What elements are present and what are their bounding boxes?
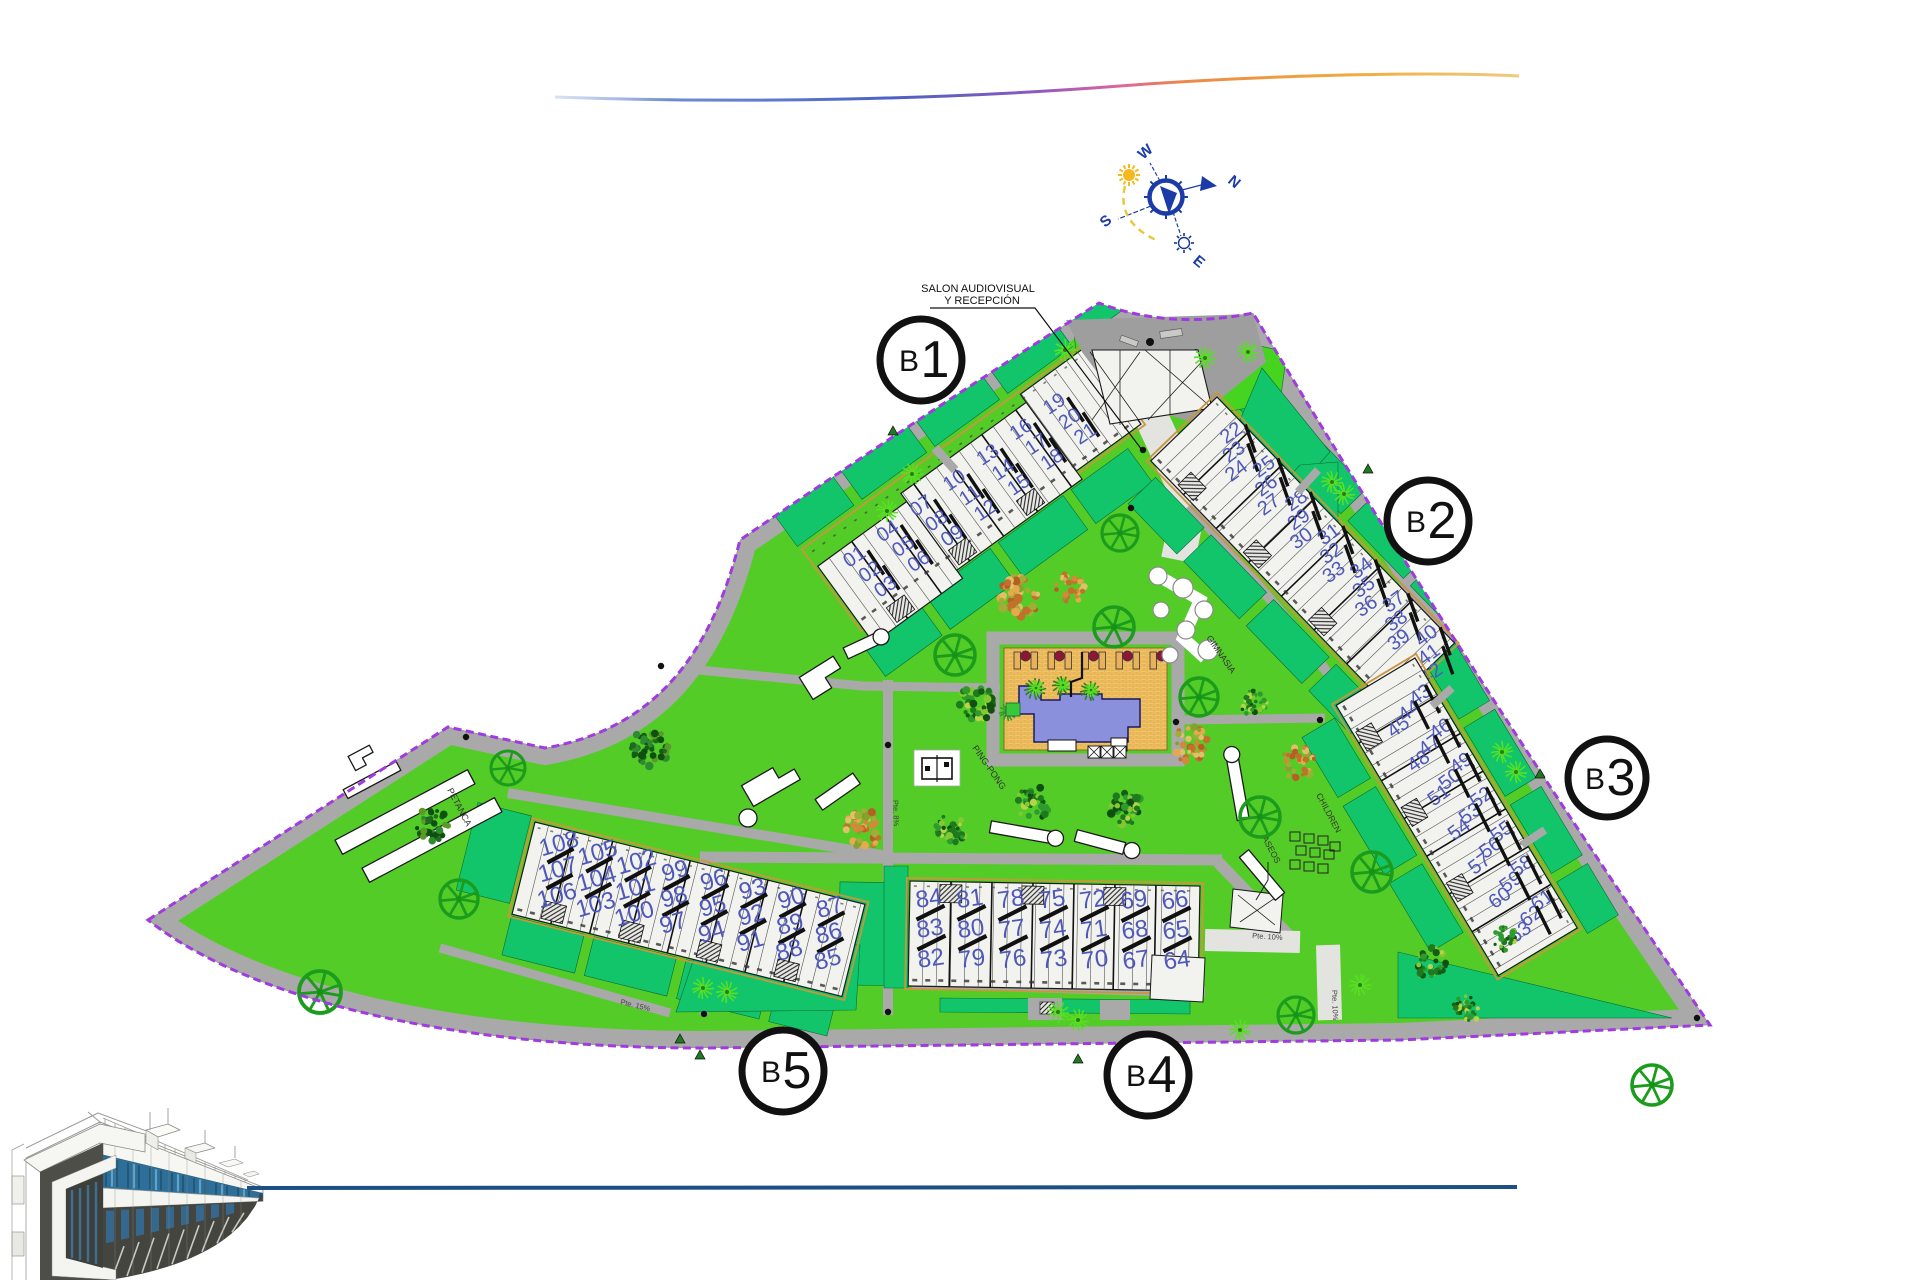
svg-text:B: B — [1406, 506, 1426, 539]
svg-text:73: 73 — [1039, 944, 1069, 974]
svg-text:B: B — [1585, 763, 1605, 796]
svg-text:Pte. 10%: Pte. 10% — [1330, 990, 1340, 1021]
svg-text:Pte. 8%: Pte. 8% — [891, 800, 901, 827]
svg-text:70: 70 — [1080, 945, 1110, 975]
svg-text:67: 67 — [1121, 945, 1151, 975]
svg-text:4: 4 — [1148, 1046, 1177, 1104]
svg-text:82: 82 — [916, 943, 946, 973]
svg-text:1: 1 — [921, 331, 950, 389]
svg-text:64: 64 — [1162, 945, 1192, 975]
svg-text:SALON AUDIOVISUAL: SALON AUDIOVISUAL — [921, 283, 1035, 295]
svg-text:B: B — [761, 1056, 781, 1089]
svg-text:5: 5 — [783, 1042, 812, 1100]
svg-text:Y RECEPCIÓN: Y RECEPCIÓN — [944, 294, 1020, 307]
svg-text:B: B — [1126, 1060, 1146, 1093]
svg-text:3: 3 — [1607, 749, 1636, 807]
svg-text:76: 76 — [998, 944, 1028, 974]
svg-text:79: 79 — [957, 944, 987, 974]
svg-text:B: B — [899, 345, 919, 378]
svg-text:2: 2 — [1428, 492, 1457, 550]
